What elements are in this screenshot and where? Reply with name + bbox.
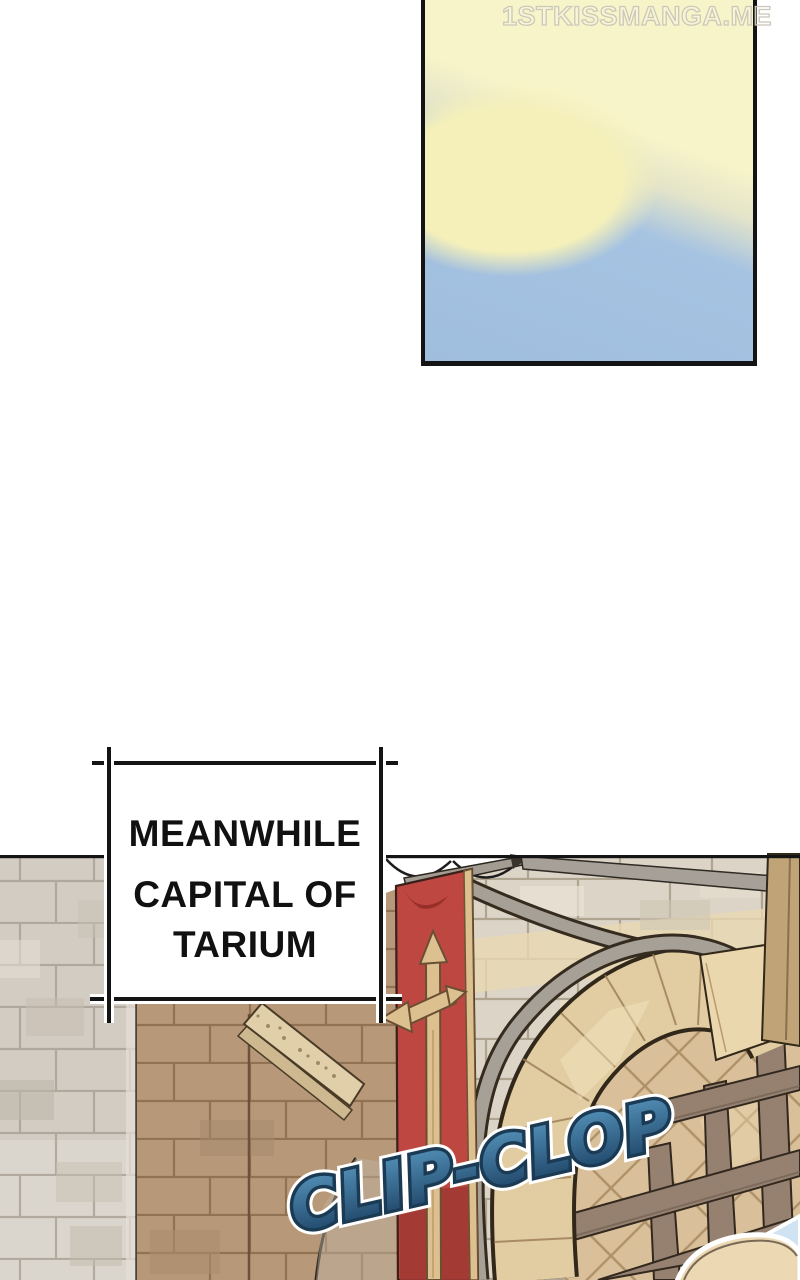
caption-line-1: MEANWHILE [112,809,378,859]
manga-page: 1STKISSMANGA.ME [0,0,800,1280]
caption-line-3: TARIUM [112,920,378,970]
caption-line-2: CAPITAL OF [112,870,378,920]
caption-frame-top [92,758,398,768]
sky-panel [421,0,757,366]
caption-frame-right [376,747,386,1023]
caption-frame-bottom [90,994,402,1004]
site-watermark: 1STKISSMANGA.ME [502,1,772,32]
caption-text-area: MEANWHILE CAPITAL OF TARIUM [112,765,378,997]
caption-frame-left [104,747,114,1023]
gate-post [762,854,800,1046]
